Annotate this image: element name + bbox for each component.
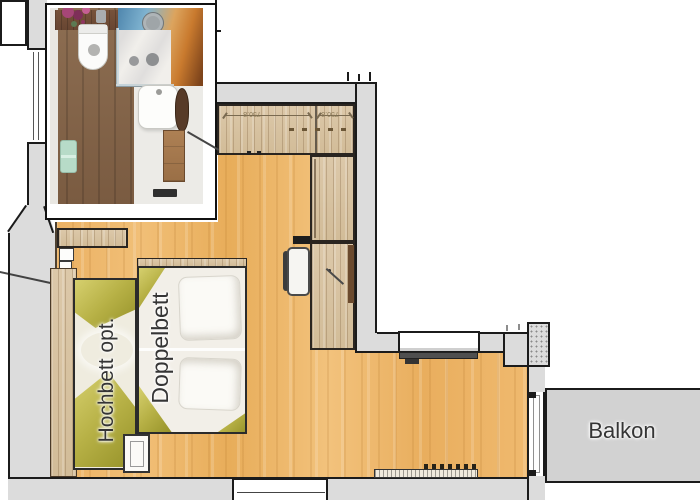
wall-left-lower — [8, 233, 55, 500]
pier-tick-1 — [506, 325, 508, 331]
balcony-door — [527, 392, 545, 476]
radiator-south — [374, 469, 478, 478]
wall-pier-top-left — [0, 0, 27, 46]
shower-glass-side — [116, 28, 119, 86]
window-north — [398, 331, 480, 353]
radiator-south-knobs — [424, 464, 476, 469]
towel — [60, 140, 77, 173]
wardrobe-column — [310, 155, 355, 242]
washbasin — [138, 85, 178, 129]
balcony-door-hinge-top — [529, 392, 536, 398]
double-bed-pillow-2 — [178, 357, 242, 411]
mirror — [175, 88, 189, 132]
shower-tray — [119, 30, 171, 84]
shower-drain-2 — [146, 53, 159, 66]
headboard-shelf — [57, 228, 128, 248]
shower-drain — [129, 56, 139, 66]
wall-extension-a — [377, 332, 398, 353]
bathroom — [45, 3, 217, 220]
wall-right-upper — [355, 82, 377, 333]
wall-extension-b — [480, 332, 503, 353]
bath-cabinet — [163, 130, 185, 182]
wall-above-balcony-door — [527, 367, 545, 392]
corner-tick-2 — [358, 74, 360, 81]
bathroom-photo — [50, 8, 203, 204]
floor-plan: Balkon — [0, 0, 700, 500]
wardrobe-column-edge — [314, 159, 316, 238]
wall-right-corner — [355, 333, 377, 353]
window-north-sill — [400, 348, 478, 351]
bathroom-wall-strip — [50, 8, 58, 204]
wall-below-balcony-door — [527, 476, 545, 500]
corner-tick-3 — [369, 72, 371, 81]
bathroom-door-handle — [153, 189, 177, 197]
corner-tick-1 — [347, 72, 349, 81]
bed-foot-bench-inner — [130, 441, 144, 467]
chair-seat — [287, 247, 310, 296]
towel-fold — [61, 155, 76, 158]
toilet-flush — [88, 44, 100, 56]
double-bed-label: Doppelbett — [145, 248, 175, 448]
pier-tick-2 — [518, 324, 520, 330]
wall-top — [215, 82, 355, 104]
wardrobe-track-dot-2 — [257, 151, 261, 155]
vase — [96, 10, 106, 23]
dimension-label-left: 750.8 — [222, 108, 282, 118]
tv-console — [293, 236, 310, 244]
double-bed-blanket-br — [215, 412, 247, 434]
window-bottom-frame — [237, 492, 325, 500]
double-bed-pillow-1 — [178, 275, 242, 341]
wall-concrete-pier — [527, 322, 550, 367]
dimension-label-right: 750.8 — [300, 108, 360, 118]
loft-bed-label: Hochbett opt. — [92, 280, 122, 480]
radiator-north — [399, 352, 478, 359]
window-left-glass — [33, 52, 39, 140]
balcony-label: Balkon — [547, 414, 697, 448]
desk — [310, 242, 355, 350]
wardrobe-track-dot-1 — [247, 151, 251, 155]
toilet — [78, 24, 108, 70]
desk-side-panel — [348, 245, 354, 303]
wardrobe-rail-marks — [289, 128, 351, 131]
wall-extension-step — [503, 332, 527, 367]
window-left — [27, 48, 46, 144]
radiator-north-valve — [405, 359, 419, 364]
window-bottom — [232, 478, 328, 500]
faucet — [156, 89, 162, 95]
balcony-door-glass — [533, 395, 540, 473]
toilet-tank — [79, 25, 107, 34]
loft-bed-step-1 — [59, 248, 74, 261]
